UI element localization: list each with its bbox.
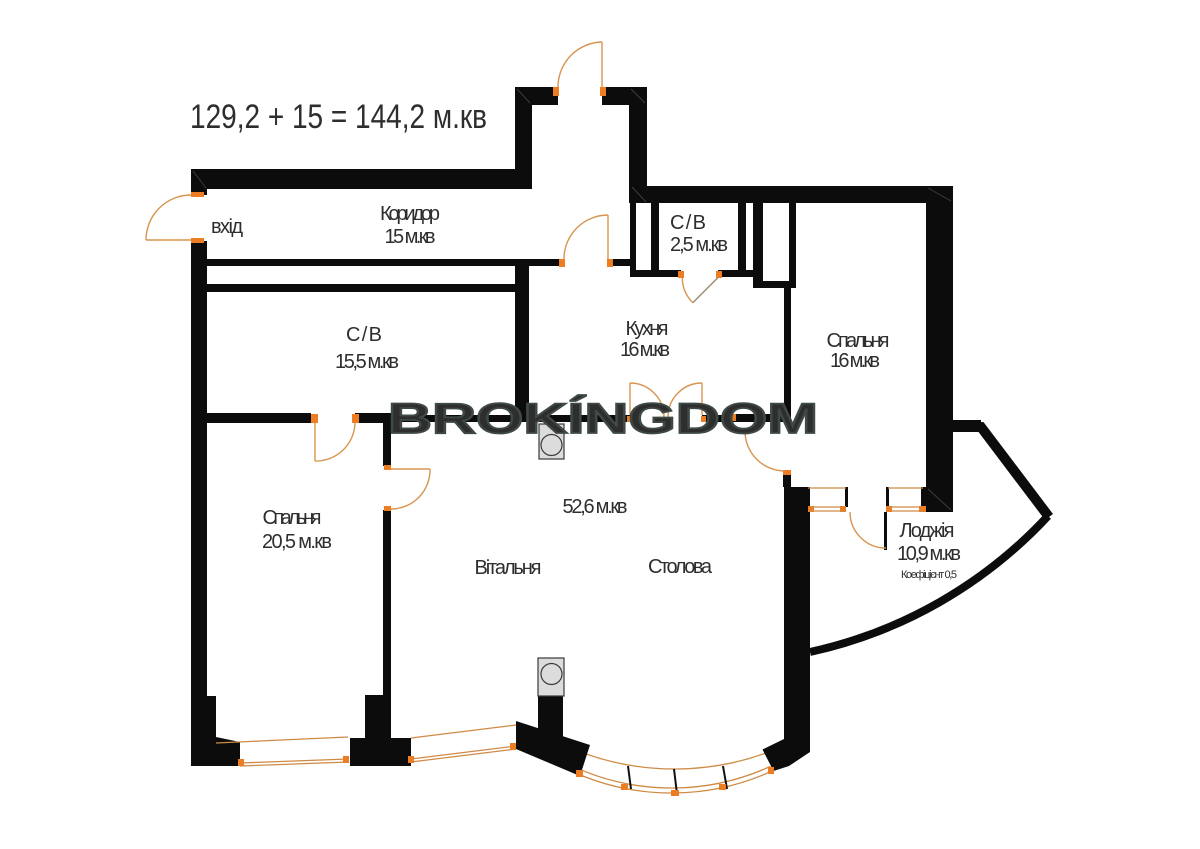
svg-text:вхід: вхід: [211, 216, 243, 238]
svg-text:Кухня: Кухня: [626, 318, 669, 340]
svg-text:15 м.кв: 15 м.кв: [385, 226, 436, 248]
svg-text:129,2 + 15 = 144,2 м.кв: 129,2 + 15 = 144,2 м.кв: [190, 98, 487, 136]
svg-text:15,5 м.кв: 15,5 м.кв: [335, 351, 399, 373]
svg-text:20,5 м.кв: 20,5 м.кв: [262, 531, 332, 553]
svg-text:Лоджія: Лоджія: [900, 520, 955, 542]
svg-text:С/В: С/В: [670, 212, 706, 234]
svg-text:10,9 м.кв: 10,9 м.кв: [897, 543, 961, 565]
svg-text:16 м.кв: 16 м.кв: [830, 350, 880, 372]
svg-text:Спальня: Спальня: [827, 330, 890, 352]
svg-text:Вітальня: Вітальня: [475, 557, 542, 579]
svg-text:Столова: Столова: [648, 556, 713, 578]
svg-text:52,6 м.кв: 52,6 м.кв: [563, 496, 628, 518]
svg-text:С/В: С/В: [346, 324, 382, 346]
svg-text:16 м.кв: 16 м.кв: [620, 339, 670, 361]
svg-text:Спальня: Спальня: [263, 507, 322, 529]
svg-text:Коридор: Коридор: [380, 203, 440, 225]
svg-text:Коефіцієнт 0,5: Коефіцієнт 0,5: [901, 569, 957, 581]
svg-text:2,5 м.кв: 2,5 м.кв: [670, 234, 728, 256]
svg-text:BROKÍNGDOM: BROKÍNGDOM: [388, 395, 818, 443]
